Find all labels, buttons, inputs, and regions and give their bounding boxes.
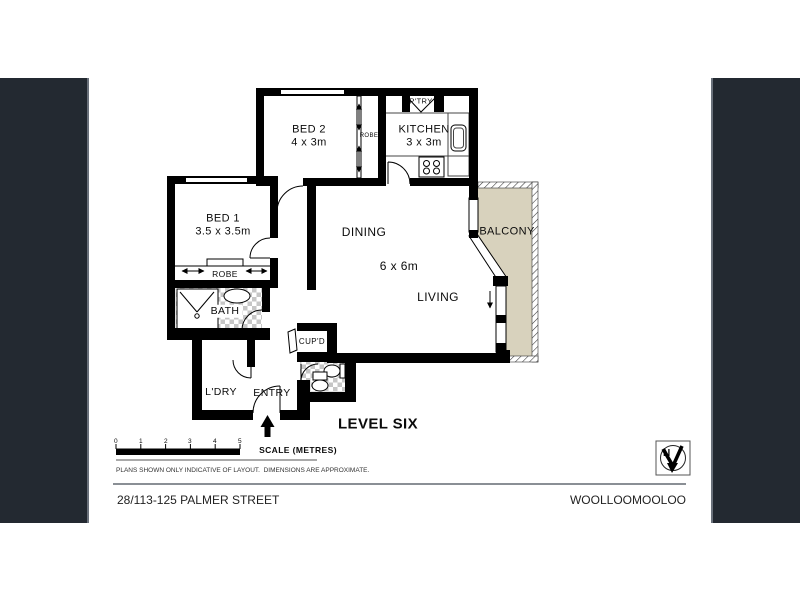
bed2-robe-label: ROBE	[360, 133, 379, 139]
scale-mark-4: 4	[213, 439, 217, 446]
kitchen-label: KITCHEN	[398, 125, 449, 136]
living-dims: 6 x 6m	[380, 260, 418, 272]
bath-label: BATH	[208, 305, 243, 318]
address-text: 28/113-125 PALMER STREET	[117, 494, 279, 506]
level-label: LEVEL SIX	[338, 417, 418, 432]
laundry-label: L'DRY	[205, 387, 237, 398]
scale-underline	[116, 459, 317, 461]
scale-mark-5: 5	[238, 439, 242, 446]
balcony-label: BALCONY	[479, 227, 534, 238]
bed2-window	[281, 90, 344, 94]
bed1-robe-label: ROBE	[212, 270, 238, 279]
living-label: LIVING	[417, 291, 459, 303]
bed2-label: BED 2	[292, 125, 326, 136]
scale-label: SCALE (METRES)	[259, 446, 337, 455]
scale-mark-1: 1	[139, 439, 143, 446]
bath-basin-icon	[224, 289, 250, 303]
bed1-dims: 3.5 x 3.5m	[195, 227, 250, 238]
entry-arrow-icon	[261, 415, 275, 437]
wc-basin-icon	[312, 380, 328, 391]
bed1-robe-recess	[207, 259, 243, 266]
balcony-area	[478, 182, 538, 362]
cupboard-door	[288, 329, 297, 353]
stove-icon	[419, 157, 444, 177]
suburb-text: WOOLLOOMOOLOO	[570, 494, 686, 506]
floorplan-drawing: N	[0, 0, 800, 600]
scale-mark-2: 2	[164, 439, 168, 446]
entry-label: ENTRY	[253, 388, 290, 399]
bed2-dims: 4 x 3m	[291, 138, 326, 149]
floorplan-page: N BED 2 4 x 3m ROBE P'TRY KITCHEN 3 x 3m…	[0, 0, 800, 600]
scale-mark-0: 0	[114, 439, 118, 446]
cupboard-label: CUP'D	[299, 338, 325, 346]
pantry-label: P'TRY	[409, 97, 432, 105]
scale-mark-3: 3	[188, 439, 192, 446]
kitchen-dims: 3 x 3m	[406, 138, 441, 149]
bed1-label: BED 1	[206, 214, 240, 225]
wc-cistern-icon	[340, 364, 345, 378]
scale-bar	[116, 444, 240, 455]
north-arrow-icon: N	[656, 441, 690, 475]
disclaimer-text: PLANS SHOWN ONLY INDICATIVE OF LAYOUT. D…	[116, 468, 369, 475]
dining-label: DINING	[342, 226, 386, 238]
bed1-window	[186, 178, 247, 182]
footer-rule	[113, 483, 686, 485]
